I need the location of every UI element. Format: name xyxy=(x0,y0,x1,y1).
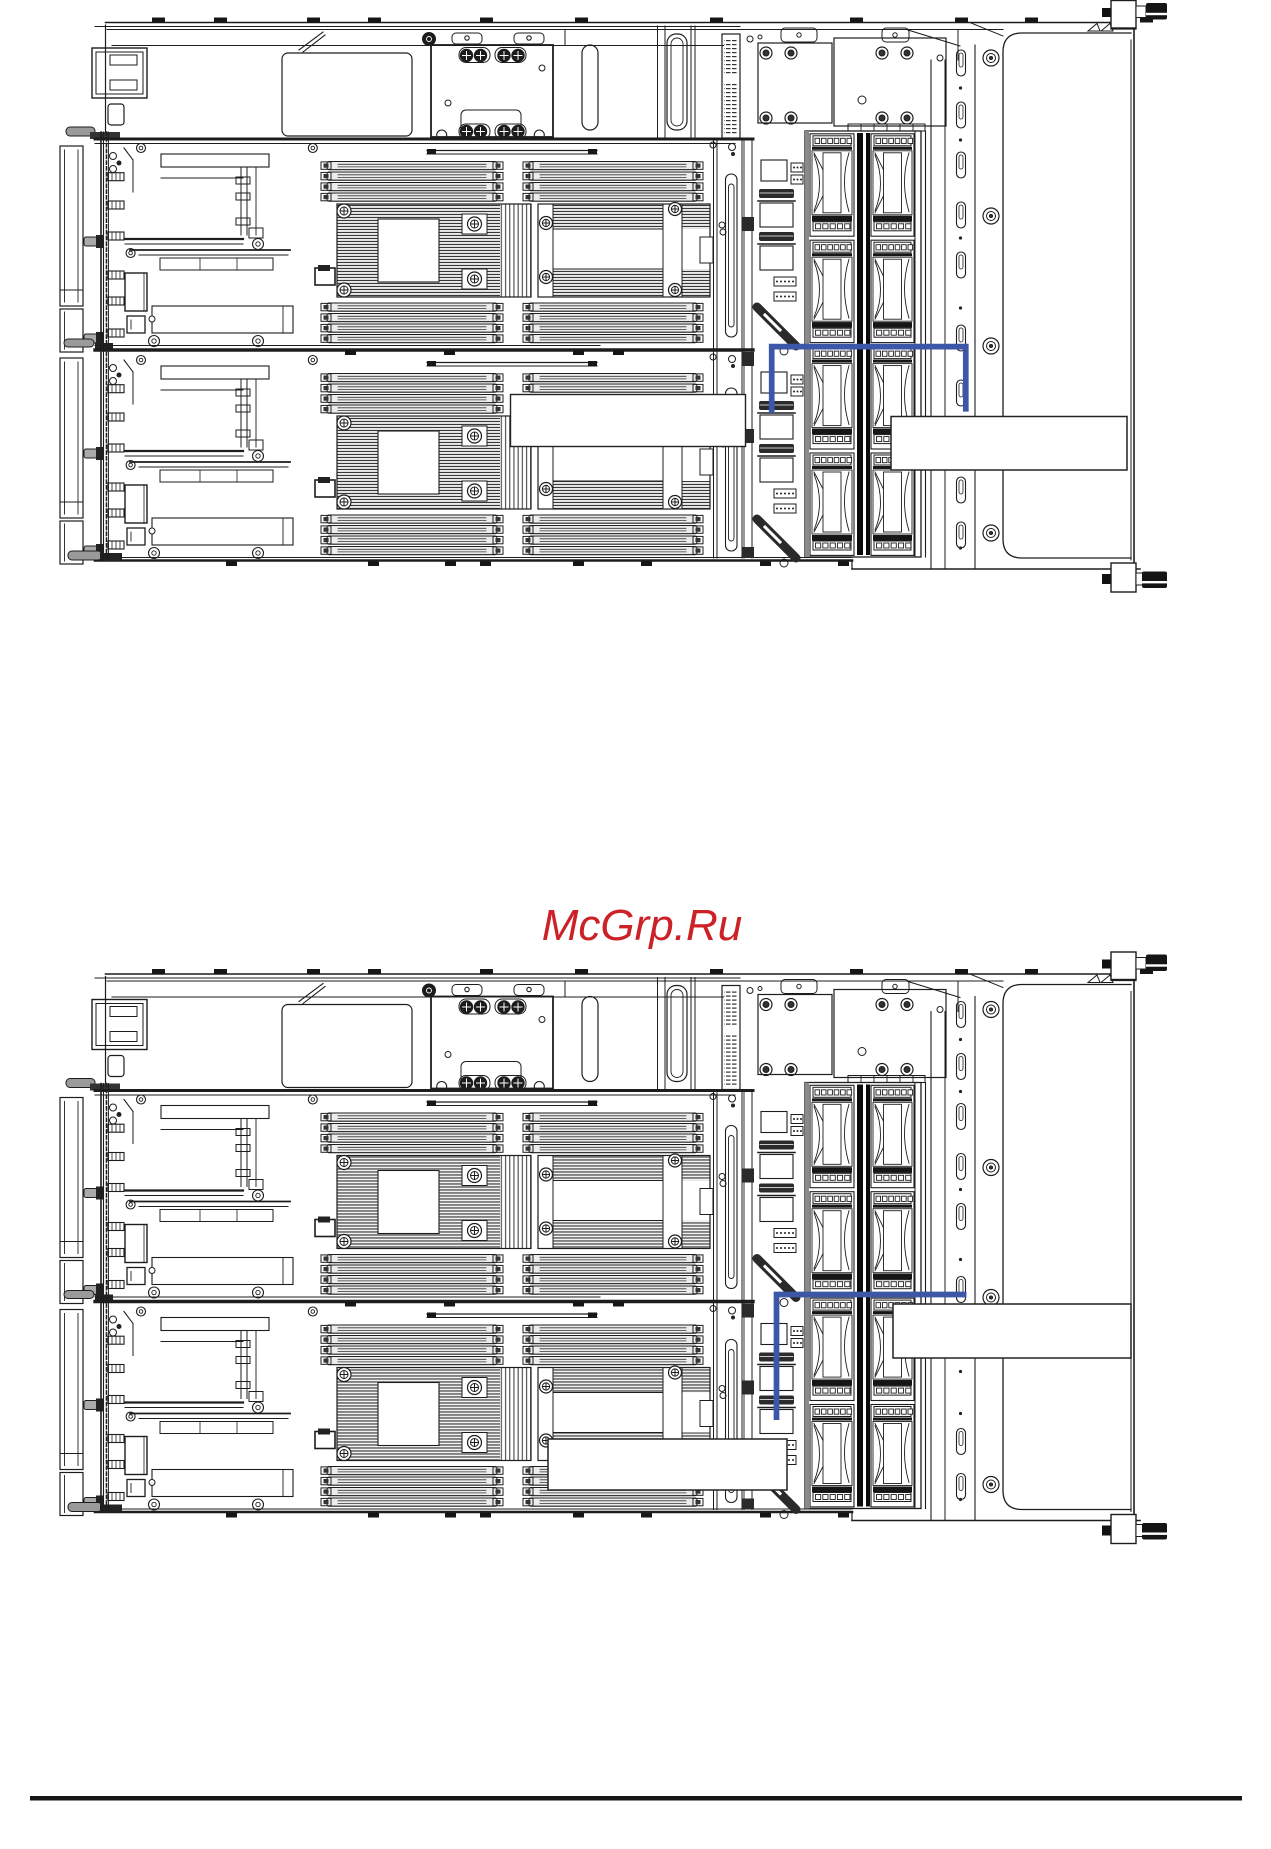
svg-text:McGrp.Ru: McGrp.Ru xyxy=(542,901,742,950)
